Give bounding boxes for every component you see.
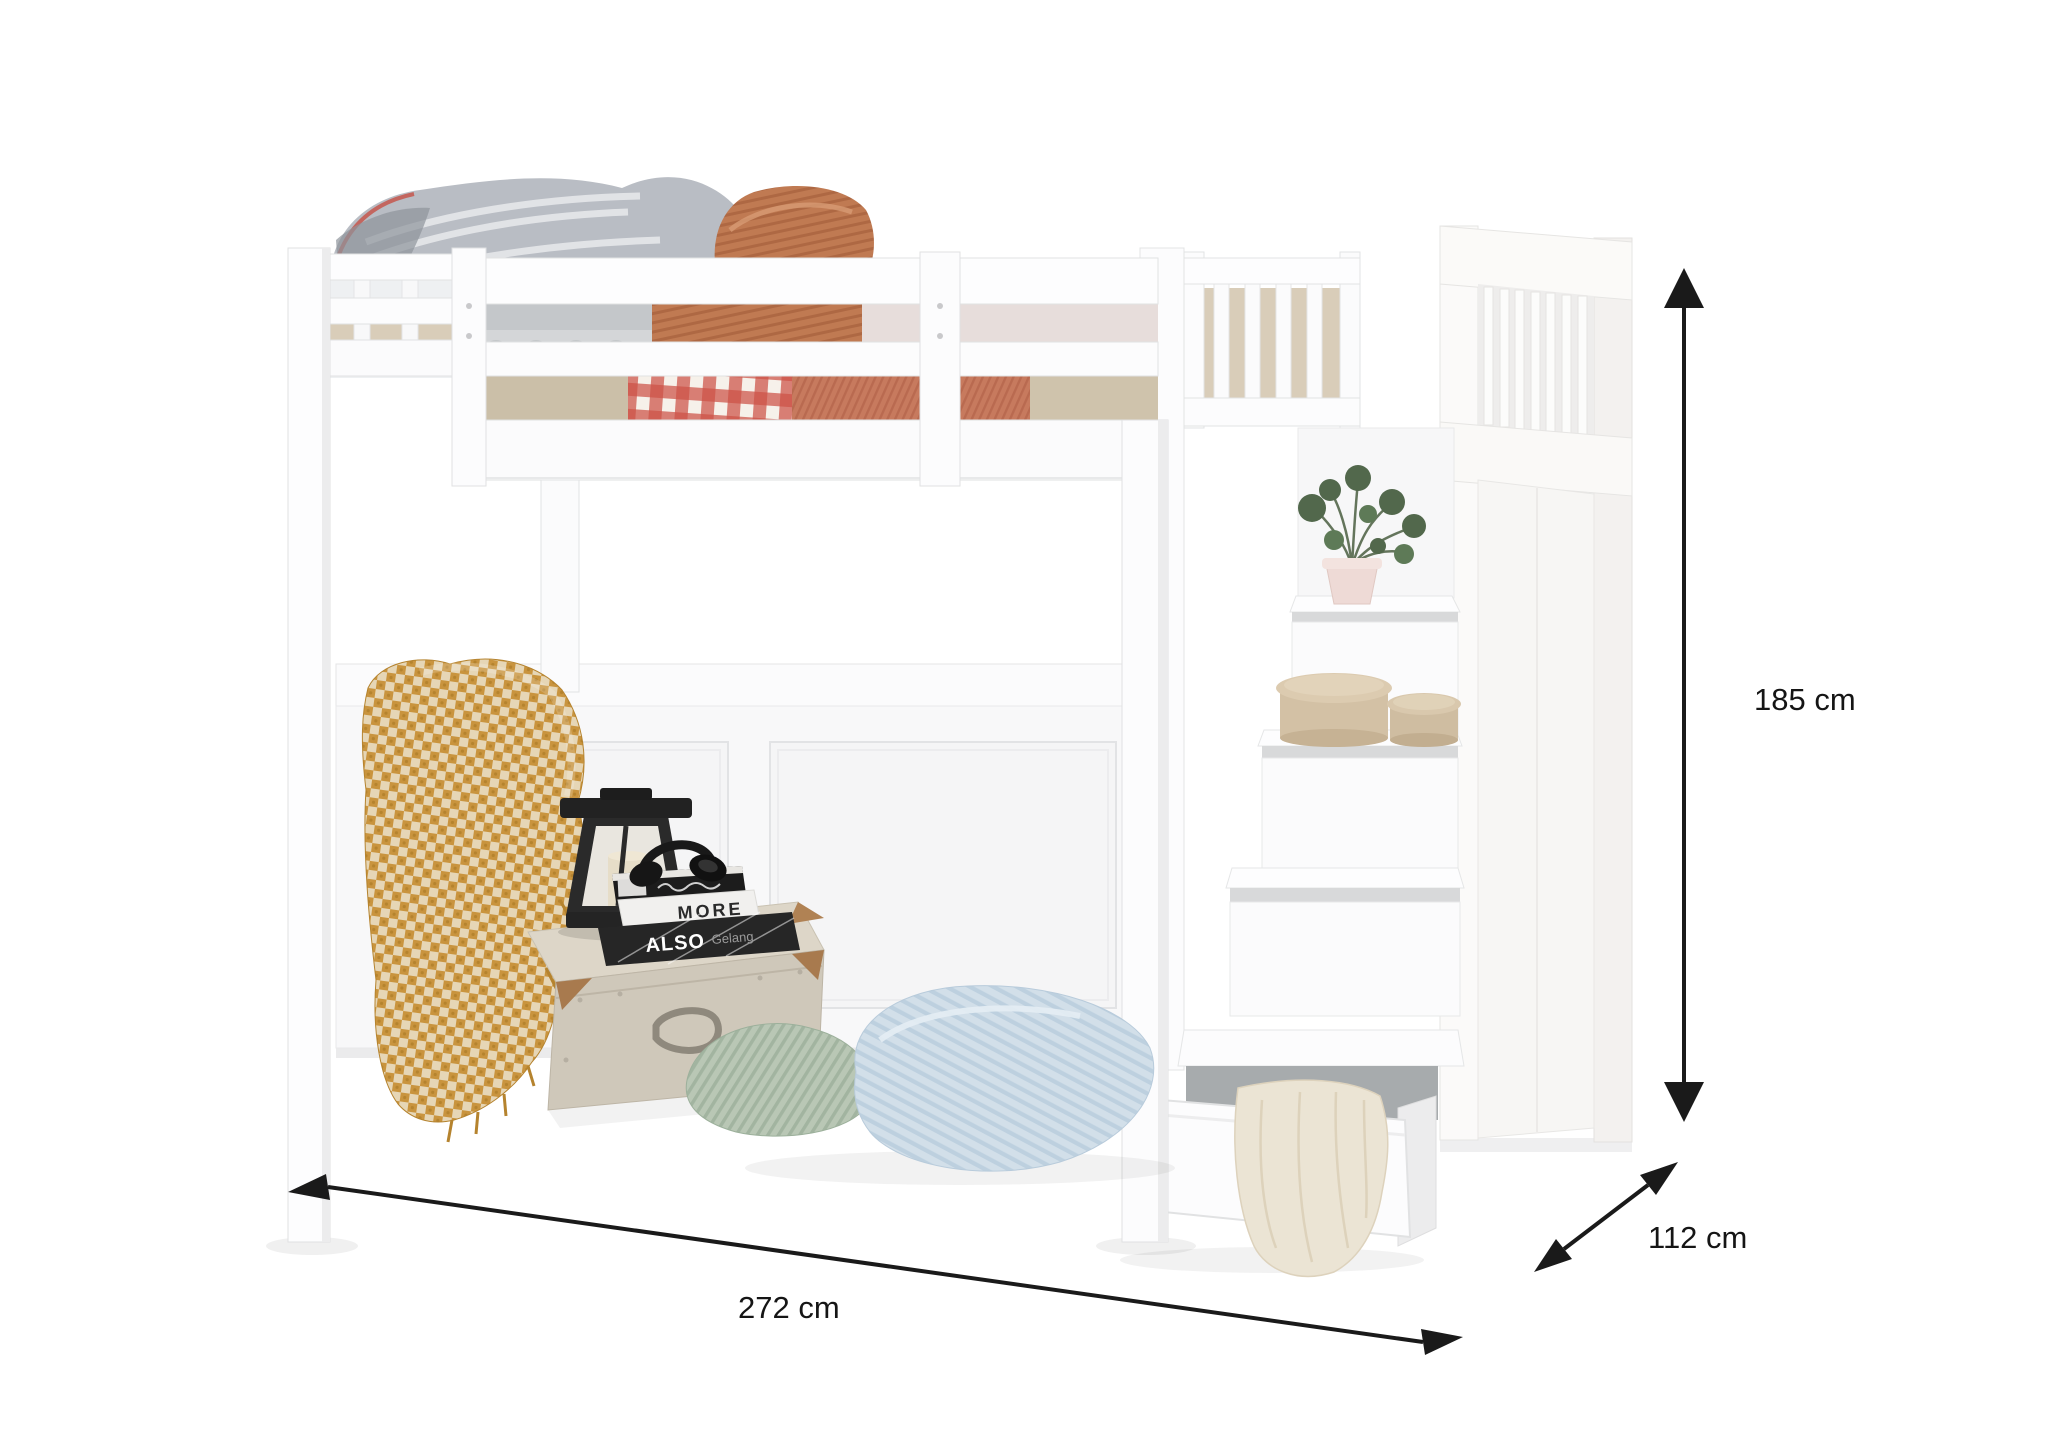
stair-drawer-front-2 [1262,758,1458,872]
depth-arrowhead-back [1640,1162,1678,1195]
stair-drawer-gap-3 [1230,888,1460,902]
gate-bottom-rail [1184,398,1360,426]
gate-slat [1245,284,1260,404]
plant-pot [1326,564,1378,604]
height-label: 185 cm [1754,682,1856,717]
hatbox-large-bottom [1280,729,1388,747]
gate-top-rail [1184,258,1360,284]
spindle [1578,296,1587,437]
bolt [937,303,943,309]
bolt [466,333,472,339]
blue-pillow [855,986,1154,1172]
end-rail-top [328,254,456,280]
lantern-cap [600,788,652,800]
stair-drawer-gap-2 [1262,746,1458,758]
front-guardrail [452,248,1158,486]
salmon-duvet-roll [792,374,1030,424]
book-bottom-title: ALSO [645,930,706,957]
left-end-guardrail [328,254,456,376]
blush-bedding-band [862,298,1158,344]
lantern-top-plate [560,798,692,818]
spindle [1546,293,1555,433]
left-end-beige-strip [330,324,456,342]
spindle [1562,295,1571,435]
mid-front-leg [541,480,579,692]
stair-tread-3 [1226,868,1464,888]
end-rail-bottom [328,340,456,376]
depth-label: 112 cm [1648,1220,1747,1255]
stair-tread-1 [1290,596,1460,612]
end-panel-right-stile [1594,238,1632,1142]
depth-arrowhead-front [1534,1239,1572,1272]
stair-drawer-front-3 [1230,902,1460,1016]
height-dimension: 185 cm [1664,268,1856,1122]
end-rail-mid [328,298,456,324]
bed-fascia [486,420,1158,480]
right-end-panel [1440,226,1632,1142]
stair-tread-4 [1178,1030,1464,1066]
spindle [1484,287,1493,425]
bolt [937,333,943,339]
guardrail-top-rail [486,258,1158,304]
spindle [1500,289,1509,427]
candle-top [608,851,648,861]
gate-slat [1214,284,1229,404]
guardrail-post-b [920,252,960,486]
height-arrowhead-bottom [1664,1082,1704,1122]
gate-slat [1276,284,1291,404]
width-arrowhead-right [1421,1329,1463,1355]
stair-gate [1184,252,1360,428]
gingham-blanket [628,374,792,424]
beige-duvet-right [1030,374,1158,424]
staircase [1140,248,1464,1070]
front-right-leg-shade [1158,420,1168,1242]
product-dimension-diagram: MORE ALSO Gelang [0,0,2048,1448]
hatbox-large-lid-top [1284,674,1384,696]
spindle [1531,292,1540,431]
guardrail-mid-rail [486,342,1158,376]
stair-drawer-gap-1 [1292,612,1458,622]
gate-slat [1307,284,1322,404]
hatbox-small-lid-top [1393,694,1455,710]
width-label: 272 cm [738,1290,840,1325]
beige-duvet-left [486,374,628,424]
bed-illustration: MORE ALSO Gelang [0,0,2048,1448]
terracotta-bedding-band [652,298,862,344]
left-post-shade [322,248,330,1242]
guardrail-post-a [452,248,486,486]
depth-arrow-line [1564,1185,1648,1249]
spindle [1515,290,1524,429]
height-arrowhead-top [1664,268,1704,308]
depth-dimension: 112 cm [1534,1162,1747,1272]
hatbox-small-bottom [1390,733,1458,747]
bolt [466,303,472,309]
plant-pot-rim [1322,558,1382,569]
